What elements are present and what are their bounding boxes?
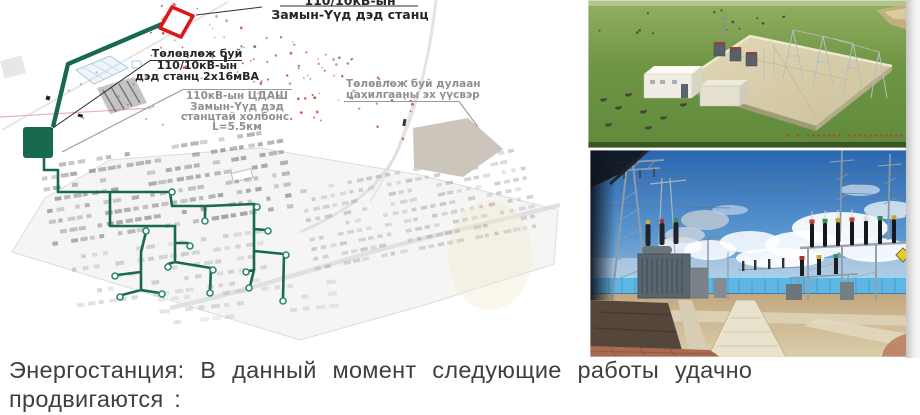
svg-text:L=5.5км: L=5.5км: [212, 121, 262, 133]
svg-text:цахилгааны эх үүсвэр: цахилгааны эх үүсвэр: [346, 89, 480, 101]
label-existing-substation: 110/10кВ-ын Замын-Үүд дэд станц: [271, 0, 428, 22]
substation-red-marker: [160, 7, 193, 37]
horizon-haze: [588, 0, 920, 6]
caption-line-2: продвигаются :: [9, 385, 914, 414]
photo-substation-render: [588, 0, 920, 148]
label-heat-source: Төлөвлөж буй дулаан цахилгааны эх үүсвэр: [346, 78, 481, 101]
label-planned-substation: Төлөвлөж буй 110/10кВ-ын дэд станц 2х16м…: [135, 47, 259, 83]
slide-caption: Энергостанция: В данный момент следующие…: [9, 356, 914, 414]
caption-line-1: Энергостанция: В данный момент следующие…: [9, 356, 914, 385]
page-edge-strip: [906, 0, 920, 358]
label-power-line: 110кВ-ын ЦДАШ Замын-Үүд дэд станцтай хол…: [181, 90, 293, 133]
planned-heat-source-area: [413, 118, 503, 177]
label-line: Замын-Үүд дэд станц: [271, 7, 428, 22]
photo-divider: [588, 148, 920, 150]
planned-substation-square: [23, 127, 53, 158]
svg-text:дэд станц 2х16мВА: дэд станц 2х16мВА: [135, 70, 259, 83]
photo-substation-switchyard: [590, 150, 920, 357]
city-network-map: 110/10кВ-ын Замын-Үүд дэд станц Төлөвлөж…: [0, 0, 588, 360]
presentation-slide: 110/10кВ-ын Замын-Үүд дэд станц Төлөвлөж…: [0, 0, 920, 415]
